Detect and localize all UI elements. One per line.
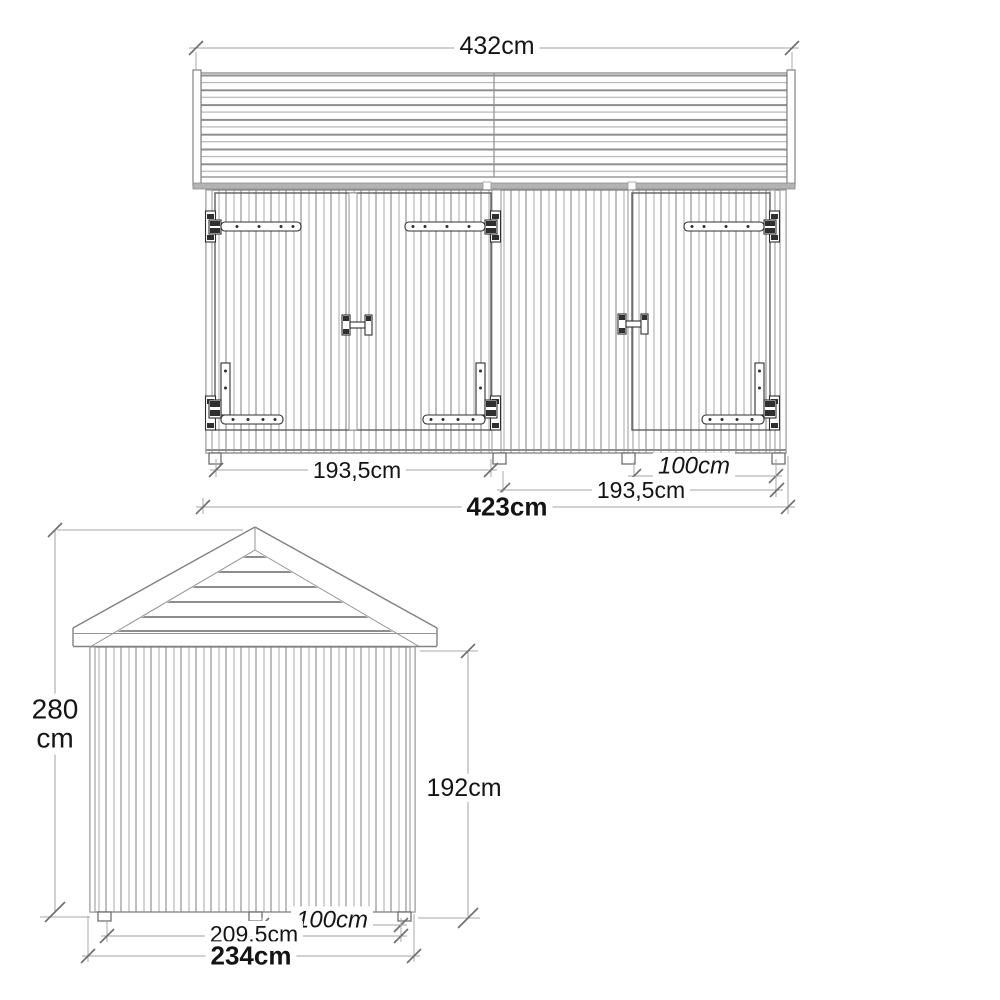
roof-drip-edge: [193, 183, 795, 189]
dim-label-double-door-width: 193,5cm: [308, 457, 406, 483]
side-roof: [73, 527, 437, 647]
dim-label-total-depth: 234cm: [206, 941, 297, 970]
dim-label-total-height: 280 cm: [27, 694, 84, 755]
dim-label-base-right-span: 100cm: [291, 906, 373, 933]
dim-label-total-height-value: 280: [32, 695, 79, 724]
dim-label-total-width: 423cm: [462, 492, 553, 521]
dim-label-wall-height: 192cm: [421, 774, 506, 802]
dim-label-roof-width: 432cm: [454, 32, 539, 60]
side-wall: [90, 647, 415, 912]
shed-technical-drawing: 432cm 193,5cm 100cm 193,5cm 423cm 280 cm…: [0, 0, 1000, 1000]
front-roof: [193, 70, 795, 190]
gable-siding: [80, 557, 430, 631]
dim-label-single-door-width: 100cm: [653, 452, 735, 479]
dim-label-total-height-unit: cm: [32, 724, 79, 753]
double-door-meeting-stile: [349, 193, 357, 430]
dim-label-right-module-width: 193,5cm: [592, 477, 690, 503]
